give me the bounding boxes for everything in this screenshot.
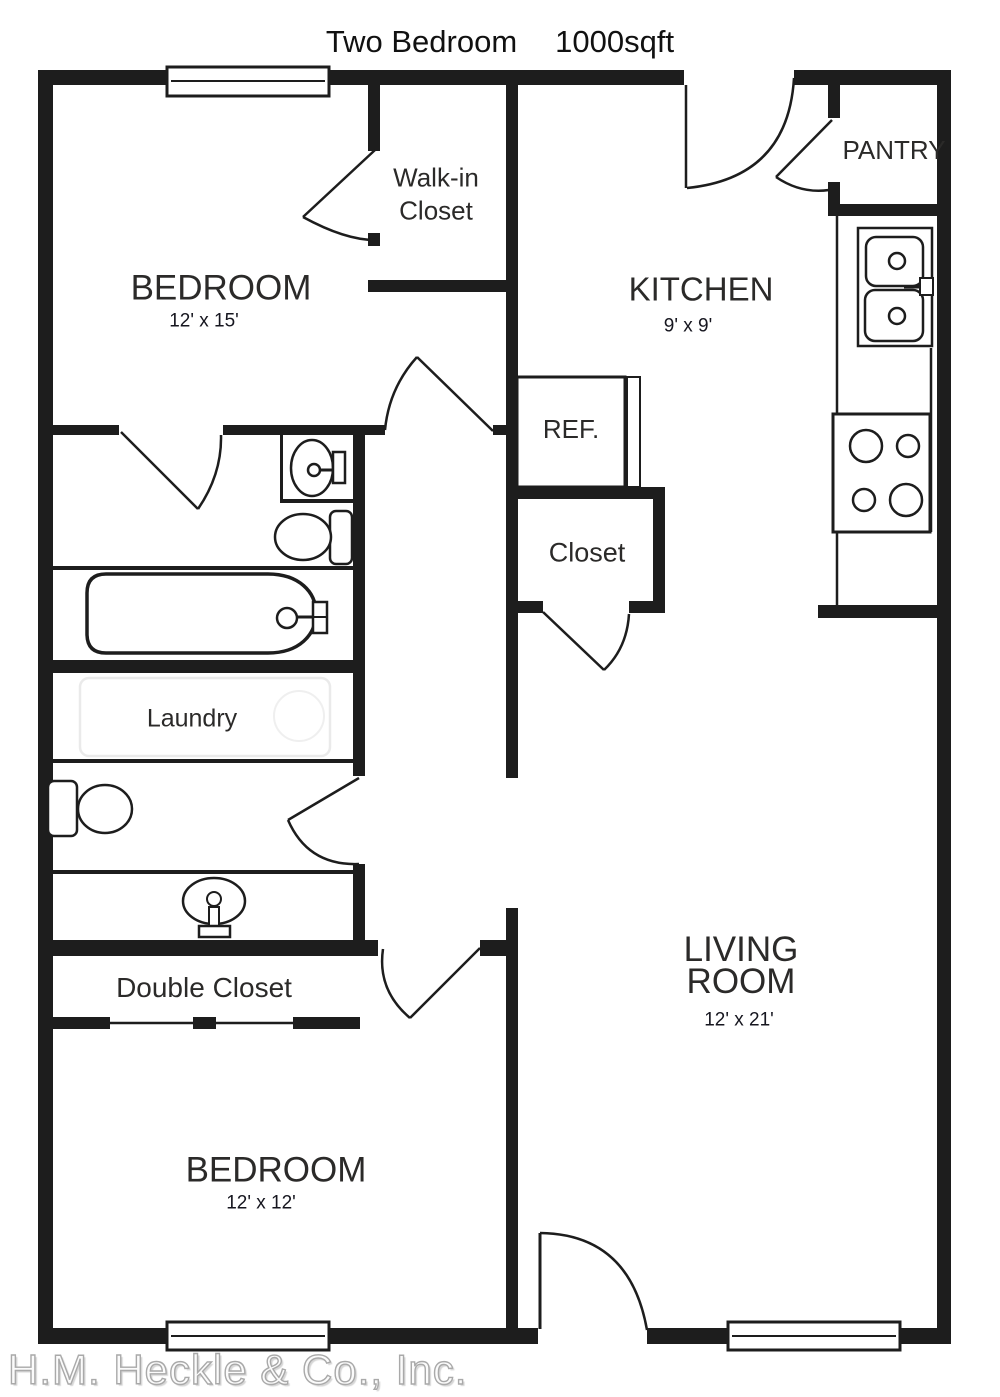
door-swing-icon bbox=[303, 150, 375, 240]
room-label-pantry: PANTRY bbox=[842, 137, 945, 163]
room-label-bedroom-top: BEDROOM bbox=[131, 271, 312, 306]
door-swing-icon bbox=[540, 1233, 647, 1330]
vanity-sink-icon bbox=[291, 440, 345, 496]
door-swing-icon bbox=[776, 120, 832, 191]
wall-segment bbox=[280, 435, 283, 501]
door-swing-icon bbox=[686, 78, 794, 188]
room-label-refrigerator: REF. bbox=[543, 416, 599, 442]
window-icon bbox=[167, 67, 329, 96]
room-label-kitchen: KITCHEN bbox=[629, 273, 774, 306]
floor-plan: Two Bedroom 1000sqft bbox=[0, 0, 1000, 1397]
wall-segment bbox=[368, 280, 518, 292]
wall-segment bbox=[493, 425, 518, 435]
wall-segment bbox=[38, 70, 53, 1344]
door-swing-icon bbox=[382, 948, 480, 1018]
wall-segment bbox=[50, 566, 355, 570]
wall-segment bbox=[50, 759, 355, 763]
walk-in-closet-line2: Closet bbox=[393, 194, 479, 227]
wall-segment bbox=[48, 425, 119, 435]
door-swing-icon bbox=[543, 612, 629, 670]
company-watermark: H.M. Heckle & Co., Inc. bbox=[8, 1346, 467, 1394]
room-label-bedroom-bottom: BEDROOM bbox=[186, 1153, 367, 1188]
wall-segment bbox=[368, 85, 380, 151]
wall-segment bbox=[653, 487, 665, 613]
door-swing-icon bbox=[288, 778, 359, 864]
wall-segment bbox=[353, 425, 365, 776]
room-dims-living-room: 12' x 21' bbox=[704, 1011, 774, 1030]
walk-in-closet-line1: Walk-in bbox=[393, 162, 479, 195]
wall-segment bbox=[818, 605, 951, 618]
room-label-walk-in-closet: Walk-in Closet bbox=[393, 162, 479, 227]
wall-segment bbox=[38, 70, 684, 85]
wall-segment bbox=[794, 70, 951, 85]
toilet-icon bbox=[275, 511, 352, 564]
double-kitchen-sink-icon bbox=[858, 228, 933, 346]
wall-segment bbox=[506, 487, 665, 499]
room-label-hall-closet: Closet bbox=[549, 540, 626, 567]
room-dims-kitchen: 9' x 9' bbox=[664, 317, 712, 336]
double-closet-slider-icon bbox=[52, 1017, 360, 1029]
room-dims-bedroom-bottom: 12' x 12' bbox=[226, 1194, 296, 1213]
room-label-laundry: Laundry bbox=[147, 707, 237, 732]
door-swing-icon bbox=[385, 357, 493, 431]
pedestal-sink-icon bbox=[183, 878, 245, 937]
wall-segment bbox=[506, 601, 543, 613]
room-dims-bedroom-top: 12' x 15' bbox=[169, 312, 239, 331]
wall-segment bbox=[50, 870, 355, 874]
living-room-line2: ROOM bbox=[684, 966, 799, 998]
wall-segment bbox=[50, 940, 378, 956]
wall-segment bbox=[506, 908, 518, 1344]
window-icon bbox=[728, 1322, 900, 1350]
toilet-icon bbox=[48, 781, 132, 836]
wall-segment bbox=[280, 499, 355, 503]
wall-segment bbox=[828, 70, 840, 118]
wall-segment bbox=[50, 660, 365, 673]
wall-segment bbox=[353, 864, 365, 943]
wall-segment bbox=[937, 70, 951, 1344]
bathtub-icon bbox=[87, 574, 327, 653]
floor-plan-drawing bbox=[0, 0, 1000, 1397]
stove-4-burner-icon bbox=[833, 414, 930, 532]
room-label-double-closet: Double Closet bbox=[116, 974, 292, 1002]
door-swing-icon bbox=[121, 432, 221, 509]
wall-segment bbox=[828, 204, 951, 216]
wall-segment bbox=[480, 940, 518, 956]
wall-segment bbox=[629, 601, 665, 613]
room-label-living-room: LIVING ROOM bbox=[684, 934, 799, 998]
